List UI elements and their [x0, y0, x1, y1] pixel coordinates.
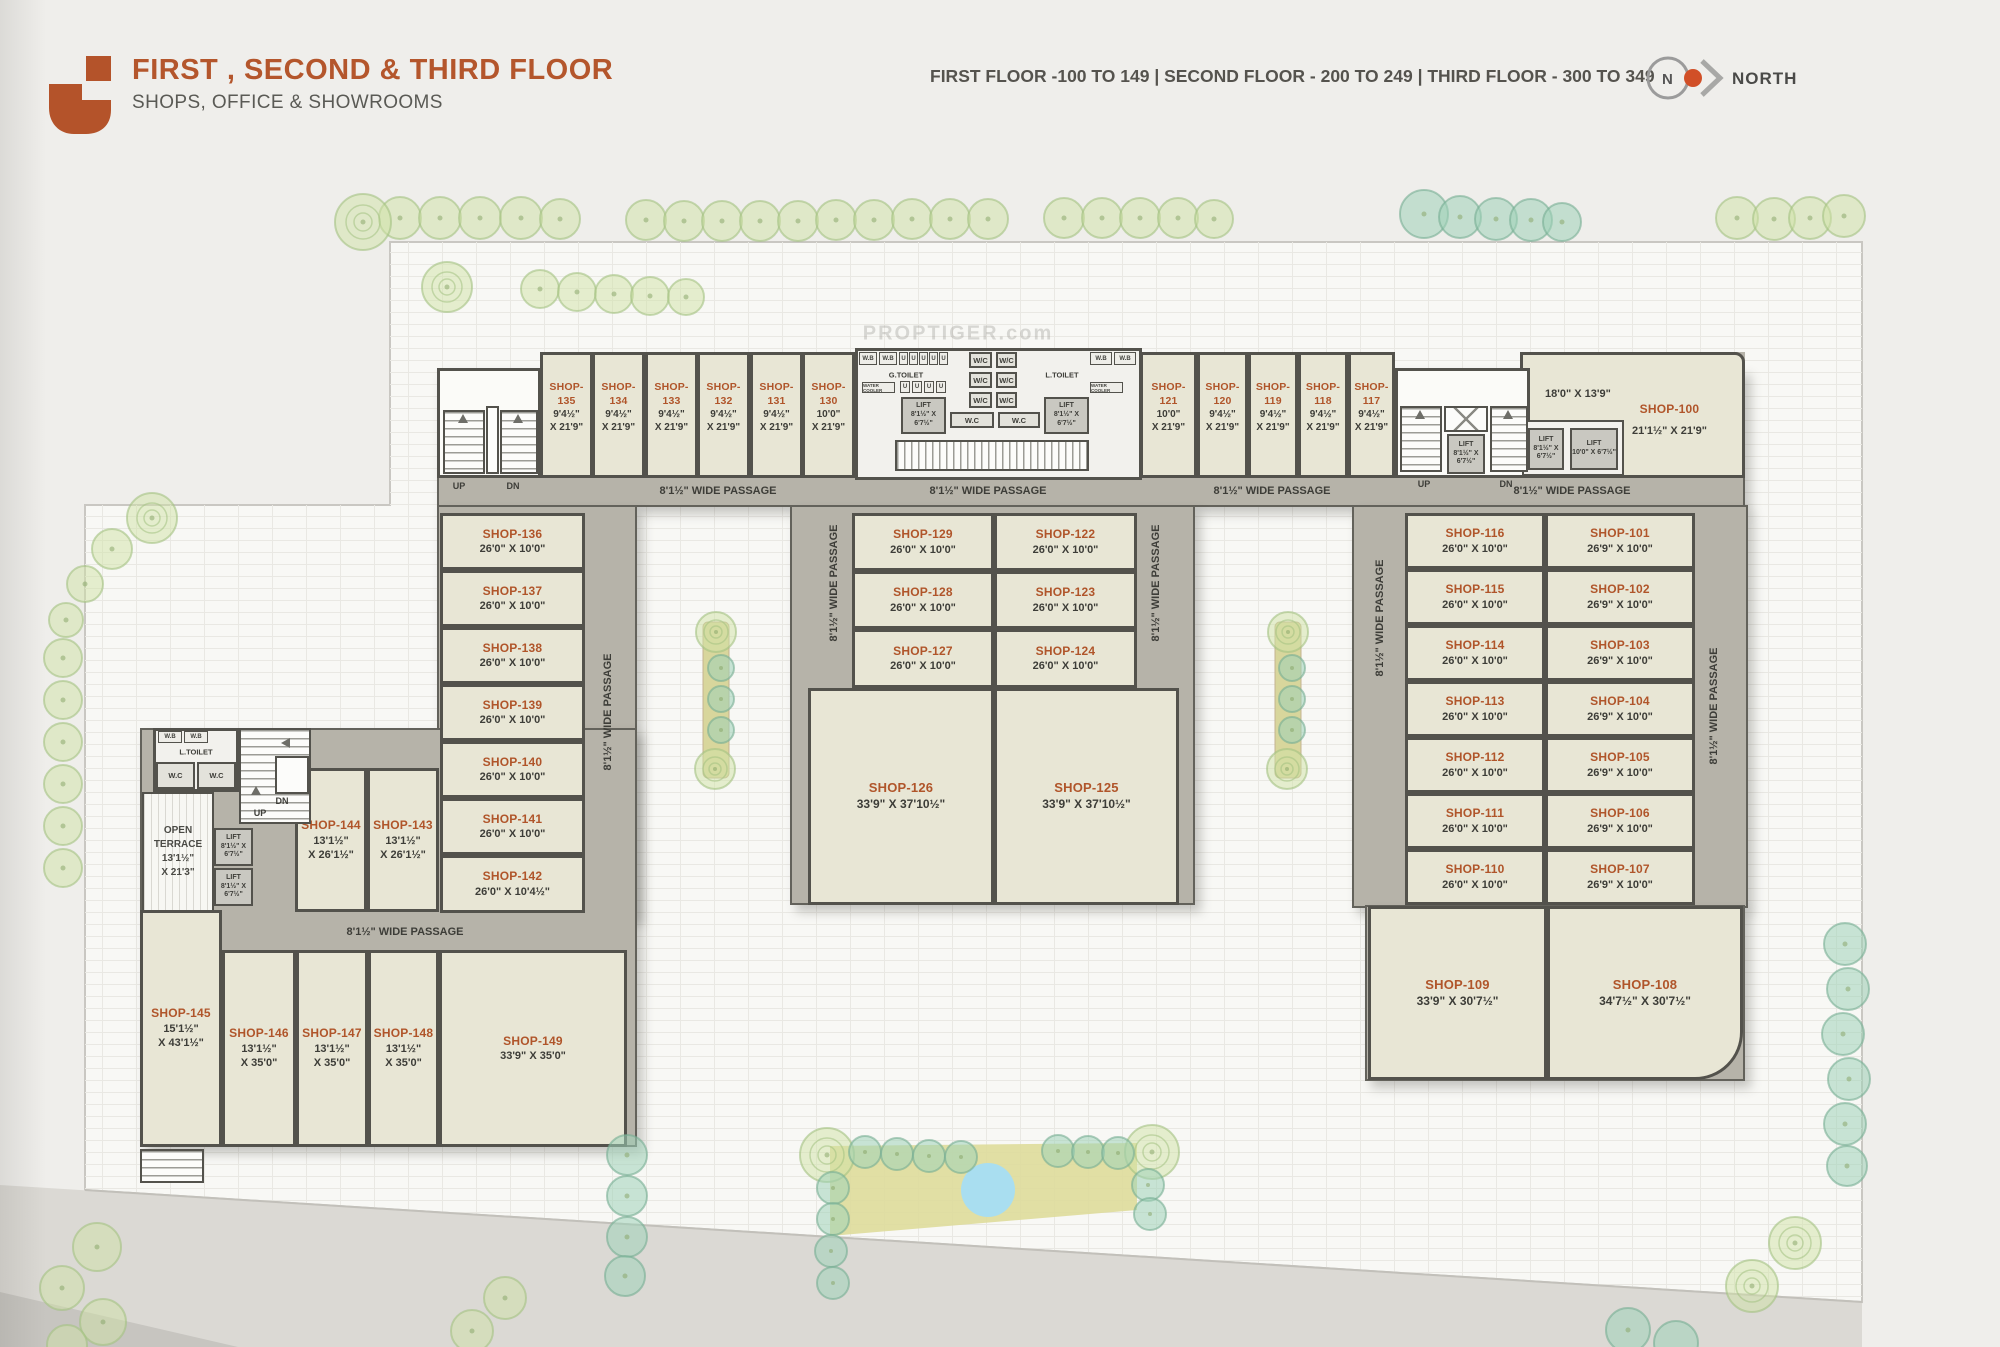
urinal: U	[900, 381, 910, 393]
washbasin: W.B	[1090, 352, 1112, 365]
shop-124: SHOP-12426'0" X 10'0"	[994, 629, 1137, 688]
grand-stairs	[895, 440, 1089, 471]
gents-toilet-label: G.TOILET	[889, 371, 923, 380]
lift-5: LIFT8'1½" X6'7½"	[214, 828, 253, 866]
shop-108: SHOP-10834'7½" X 30'7½"	[1547, 906, 1743, 1080]
page-title: FIRST , SECOND & THIRD FLOOR	[132, 54, 613, 87]
pond	[961, 1163, 1015, 1217]
wc-stall: W.C	[197, 762, 236, 789]
up-label: UP	[1418, 479, 1431, 489]
lift-4: LIFT8'1½" X6'7½"	[1528, 428, 1564, 470]
shop-145: SHOP-14515'1½"X 43'1½"	[140, 910, 222, 1147]
shop-139: SHOP-13926'0" X 10'0"	[440, 684, 585, 741]
up-arrow-icon	[1415, 410, 1425, 419]
passage-label: 8'1½" WIDE PASSAGE	[346, 926, 463, 938]
passage-label: 8'1½" WIDE PASSAGE	[1513, 485, 1630, 497]
dn-label: DN	[276, 796, 289, 806]
urinal: U	[919, 352, 928, 365]
shop-120: SHOP-1209'4½"X 21'9"	[1197, 352, 1248, 478]
floor-plan-page: FIRST , SECOND & THIRD FLOOR SHOPS, OFFI…	[0, 0, 2000, 1347]
lift-wide: LIFT10'0" X 6'7½"	[1570, 428, 1618, 470]
shop-146: SHOP-14613'1½"X 35'0"	[222, 950, 296, 1147]
north-indicator: N NORTH	[1640, 52, 1860, 104]
shop-118: SHOP-1189'4½"X 21'9"	[1298, 352, 1348, 478]
passage-label: 8'1½" WIDE PASSAGE	[602, 653, 614, 770]
urinal: U	[909, 352, 918, 365]
shop-123: SHOP-12326'0" X 10'0"	[994, 571, 1137, 629]
shop-142: SHOP-14226'0" X 10'4½"	[440, 855, 585, 913]
up-arrow-icon	[1503, 410, 1513, 419]
shop-110: SHOP-11026'0" X 10'0"	[1405, 849, 1545, 905]
urinal: U	[929, 352, 938, 365]
shop-134: SHOP-1349'4½"X 21'9"	[592, 352, 645, 478]
shop-135: SHOP-1359'4½"X 21'9"	[540, 352, 593, 478]
wc-stall: W/C	[996, 372, 1017, 388]
shop-122: SHOP-12226'0" X 10'0"	[994, 513, 1137, 571]
shop-102: SHOP-10226'9" X 10'0"	[1545, 569, 1695, 625]
wc-stall: W.C	[156, 762, 195, 789]
shop-140: SHOP-14026'0" X 10'0"	[440, 741, 585, 798]
north-label: NORTH	[1732, 69, 1797, 88]
urinal: U	[924, 381, 934, 393]
wc-stall: W/C	[996, 392, 1017, 408]
wc-stall: W/C	[969, 352, 992, 368]
planter-right	[1275, 622, 1301, 778]
wc-stall: W/C	[969, 392, 992, 408]
wc-stall: W/C	[969, 372, 992, 388]
shop-117: SHOP-1179'4½"X 21'9"	[1348, 352, 1395, 478]
shop-106: SHOP-10626'9" X 10'0"	[1545, 793, 1695, 849]
shop-113: SHOP-11326'0" X 10'0"	[1405, 681, 1545, 737]
compass-dot-icon	[1684, 69, 1702, 87]
up-arrow-icon	[513, 414, 523, 423]
compass-arrow-icon	[1702, 61, 1720, 95]
open-terrace: OPENTERRACE 13'1½"X 21'3"	[142, 792, 214, 912]
shop-141: SHOP-14126'0" X 10'0"	[440, 798, 585, 855]
shop-130: SHOP-13010'0"X 21'9"	[802, 352, 855, 478]
passage-label: 8'1½" WIDE PASSAGE	[828, 524, 840, 641]
up-arrow-icon	[251, 786, 261, 795]
entry-steps	[140, 1149, 204, 1183]
shop-121: SHOP-12110'0"X 21'9"	[1140, 352, 1197, 478]
shop-125: SHOP-12533'9" X 37'10½"	[994, 688, 1179, 905]
shop-147: SHOP-14713'1½"X 35'0"	[296, 950, 368, 1147]
urinal: U	[939, 352, 948, 365]
lift-6: LIFT8'1½" X6'7½"	[214, 868, 253, 906]
north-letter: N	[1662, 71, 1673, 88]
left-arrow-icon	[281, 738, 290, 748]
washbasin: W.B	[1114, 352, 1136, 365]
shop-112: SHOP-11226'0" X 10'0"	[1405, 737, 1545, 793]
wc-stall: W.C	[998, 412, 1040, 428]
lift-2: LIFT8'1½" X6'7½"	[1044, 397, 1089, 434]
passage-label: 8'1½" WIDE PASSAGE	[659, 485, 776, 497]
shop-116: SHOP-11626'0" X 10'0"	[1405, 513, 1545, 569]
brand-logo-icon	[44, 52, 116, 136]
shop-131: SHOP-1319'4½"X 21'9"	[750, 352, 803, 478]
shop-129: SHOP-12926'0" X 10'0"	[852, 513, 994, 571]
shop-149: SHOP-14933'9" X 35'0"	[439, 950, 627, 1147]
passage-label: 8'1½" WIDE PASSAGE	[1708, 647, 1720, 764]
shop-136: SHOP-13626'0" X 10'0"	[440, 513, 585, 570]
washbasin: W.B	[879, 352, 897, 365]
lift-3: LIFT8'1½" X6'7½"	[1447, 434, 1485, 474]
shop-111: SHOP-11126'0" X 10'0"	[1405, 793, 1545, 849]
shop-132: SHOP-1329'4½"X 21'9"	[697, 352, 750, 478]
shop-103: SHOP-10326'9" X 10'0"	[1545, 625, 1695, 681]
washbasin: W.B	[859, 352, 877, 365]
up-label: UP	[254, 808, 267, 818]
shop-114: SHOP-11426'0" X 10'0"	[1405, 625, 1545, 681]
lift-shaft-cross	[1444, 406, 1488, 432]
lift-1: LIFT8'1½" X6'7½"	[901, 397, 946, 434]
shop-109: SHOP-10933'9" X 30'7½"	[1368, 906, 1547, 1080]
planter-left	[703, 622, 729, 778]
ladies-toilet-label: L.TOILET	[179, 748, 212, 757]
shop-138: SHOP-13826'0" X 10'0"	[440, 627, 585, 684]
ladies-toilet-label: L.TOILET	[1045, 371, 1078, 380]
shop-143: SHOP-14313'1½"X 26'1½"	[367, 768, 439, 912]
shop-133: SHOP-1339'4½"X 21'9"	[645, 352, 698, 478]
water-cooler: WATER COOLER	[1090, 382, 1123, 393]
passage-label: 8'1½" WIDE PASSAGE	[929, 485, 1046, 497]
watermark: PROPTIGER.com	[863, 323, 1053, 346]
dn-label: DN	[1500, 479, 1513, 489]
shop-148: SHOP-14813'1½"X 35'0"	[368, 950, 439, 1147]
urinal: U	[899, 352, 908, 365]
shop-105: SHOP-10526'9" X 10'0"	[1545, 737, 1695, 793]
shop-127: SHOP-12726'0" X 10'0"	[852, 629, 994, 688]
urinal: U	[912, 381, 922, 393]
up-arrow-icon	[458, 414, 468, 423]
up-label: UP	[453, 481, 466, 491]
shop-100-inner-dim: 18'0" X 13'9"	[1545, 387, 1611, 401]
floor-range-info: FIRST FLOOR -100 TO 149 | SECOND FLOOR -…	[930, 66, 1655, 87]
page-subtitle: SHOPS, OFFICE & SHOWROOMS	[132, 92, 443, 114]
passage-label: 8'1½" WIDE PASSAGE	[1213, 485, 1330, 497]
shop-128: SHOP-12826'0" X 10'0"	[852, 571, 994, 629]
shop-115: SHOP-11526'0" X 10'0"	[1405, 569, 1545, 625]
water-cooler: WATER COOLER	[862, 382, 895, 393]
dn-label: DN	[507, 481, 520, 491]
wc-stall: W.C	[950, 412, 994, 428]
urinal: U	[936, 381, 946, 393]
shop-126: SHOP-12633'9" X 37'10½"	[808, 688, 994, 905]
passage-label: 8'1½" WIDE PASSAGE	[1150, 524, 1162, 641]
shop-119: SHOP-1199'4½"X 21'9"	[1248, 352, 1298, 478]
passage-label: 8'1½" WIDE PASSAGE	[1374, 559, 1386, 676]
washbasin: W.B	[158, 731, 182, 743]
washbasin: W.B	[184, 731, 208, 743]
wc-stall: W/C	[996, 352, 1017, 368]
shop-101: SHOP-10126'9" X 10'0"	[1545, 513, 1695, 569]
shop-107: SHOP-10726'9" X 10'0"	[1545, 849, 1695, 905]
shop-104: SHOP-10426'9" X 10'0"	[1545, 681, 1695, 737]
shop-137: SHOP-13726'0" X 10'0"	[440, 570, 585, 627]
